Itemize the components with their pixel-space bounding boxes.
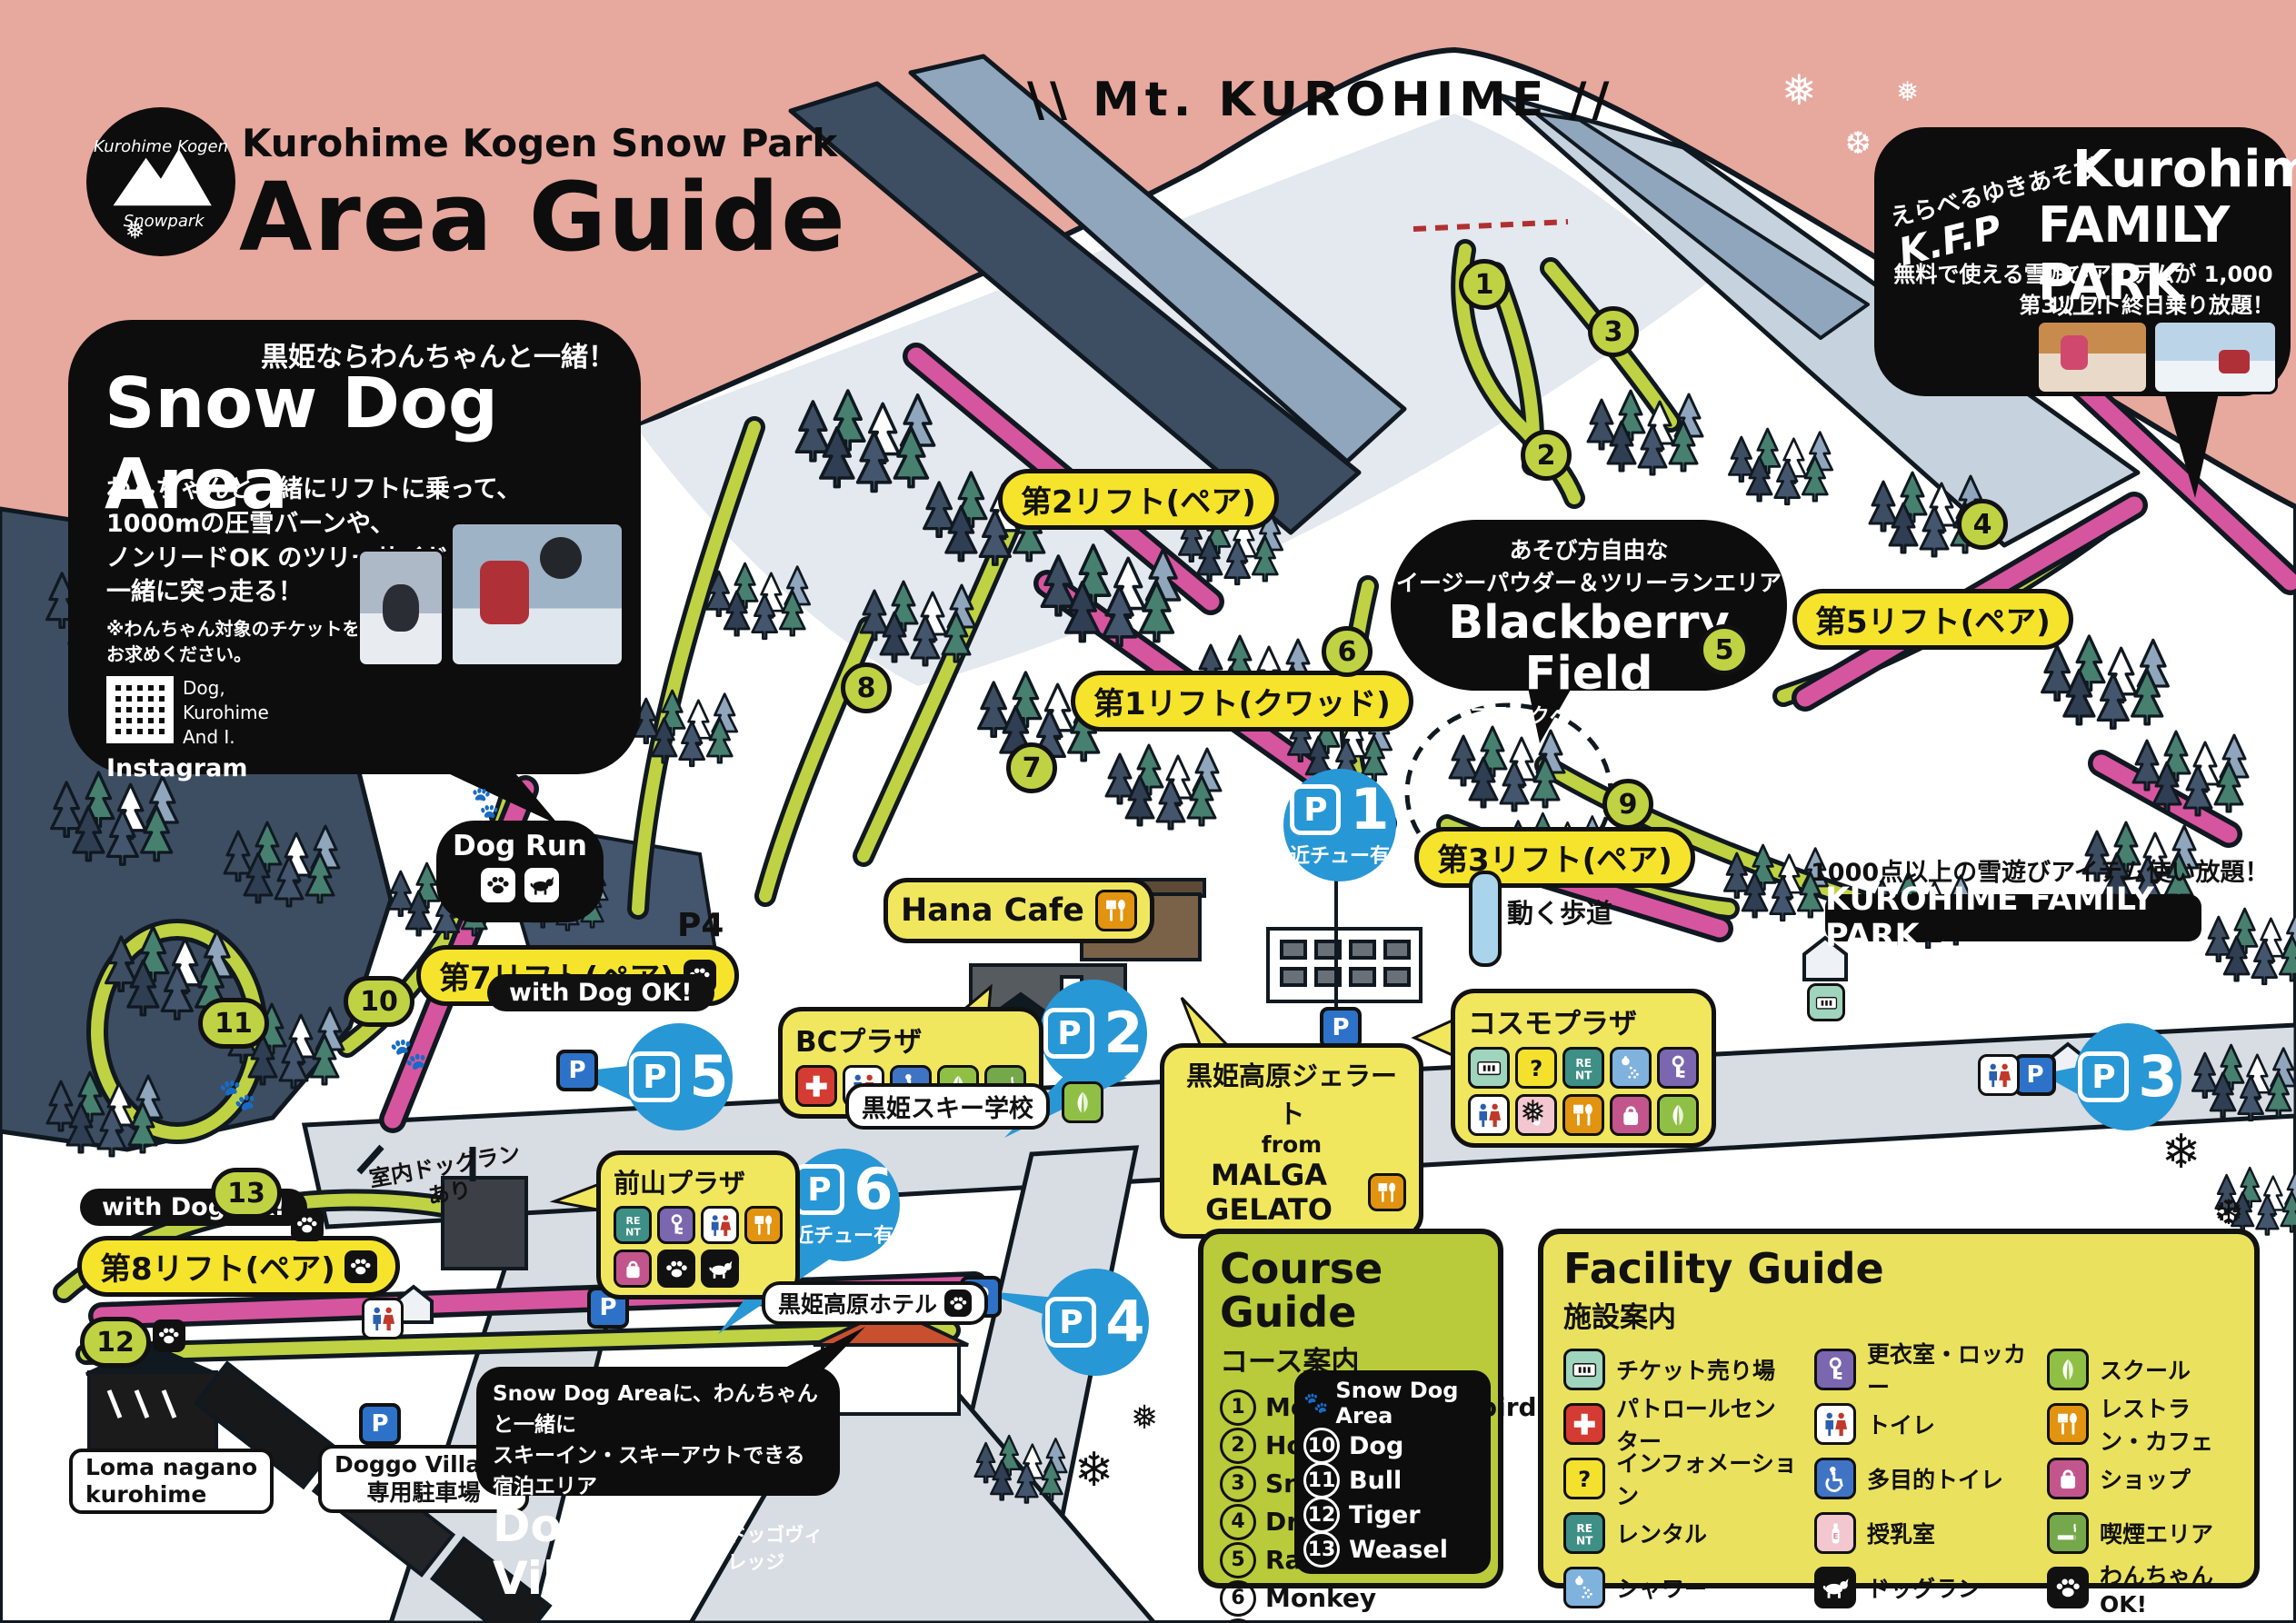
- p-icon: P: [2078, 1051, 2129, 1102]
- parking-p1-note: 近チュー有: [1290, 840, 1390, 869]
- family-park-map-label: KUROHIME FAMILY PARK: [1825, 894, 2201, 941]
- course-guide-snowdog-inset: 🐾 Snow Dog Area 10Dog 11Bull 12Tiger 13W…: [1294, 1370, 1491, 1574]
- mountain-title-mark-right: //: [1569, 73, 1614, 127]
- course-guide-title: Course Guide: [1220, 1247, 1482, 1335]
- cosmo-plaza-bubble: コスモプラザ: [1451, 989, 1716, 1148]
- doggo-village-title: Doggo Village: [493, 1499, 716, 1605]
- ticket-icon: [1563, 1349, 1605, 1390]
- restaurant-icon: [1368, 1173, 1406, 1211]
- maeyama-plaza-bubble: 前山プラザ: [596, 1150, 800, 1299]
- patrol-icon: [795, 1065, 837, 1107]
- qr-caption: Dog, Kurohime And I.: [183, 676, 269, 750]
- lift1-label: 第1リフト(クワッド): [1071, 671, 1413, 732]
- nursing-room-icon: [1814, 1512, 1856, 1554]
- p-icon: P: [1045, 1297, 1096, 1348]
- school-icon: [1062, 1081, 1103, 1123]
- parking-p6: P 6 近チュー有: [787, 1149, 900, 1261]
- parking-p1: P 1 近チュー有: [1283, 769, 1396, 881]
- blackberry-subtitle: ブラックベリーフィールド: [1391, 700, 1787, 729]
- parking-icon: P: [2014, 1054, 2056, 1096]
- parking-p5: P 5: [625, 1023, 733, 1130]
- dog-ok-icon: [944, 1289, 972, 1317]
- dog-run-icon: [701, 1250, 739, 1288]
- moving-walkway: [1469, 871, 1502, 967]
- blackberry-line1: あそび方自由な: [1391, 533, 1787, 565]
- snow-dog-photo-1: [357, 549, 444, 667]
- snow-dog-photo-2: [450, 522, 624, 667]
- toilet-icon: [1468, 1094, 1510, 1136]
- paw-marker-icon: 🐾: [218, 1077, 256, 1113]
- shop-icon: [614, 1250, 652, 1288]
- family-park-photo-2: [2152, 320, 2278, 394]
- area-guide-map: Kurohime Kogen Snowpark ❅ Kurohime Kogen…: [0, 0, 2296, 1623]
- restaurant-icon: [1562, 1094, 1604, 1136]
- smoking-icon: [2047, 1512, 2089, 1554]
- rental-icon: [1563, 1512, 1605, 1554]
- lift3-label: 第3リフト(ペア): [1414, 827, 1695, 888]
- paw-marker-icon: [153, 1319, 185, 1352]
- p-icon: P: [629, 1051, 680, 1102]
- accessible-toilet-icon: [1814, 1458, 1856, 1499]
- snowflake-icon: ❆: [1845, 125, 1872, 162]
- snowflake-icon: ❅: [1520, 1094, 1546, 1130]
- snowflake-icon: ❅: [1782, 65, 1817, 115]
- ski-school-label: 黒姫スキー学校: [845, 1083, 1050, 1130]
- family-park-photo-1: [2036, 320, 2149, 394]
- dog-run-icon: [1814, 1567, 1856, 1608]
- instagram-label: Instagram: [106, 754, 247, 782]
- resort-logo: Kurohime Kogen Snowpark ❅: [86, 107, 235, 256]
- ticket-map-icon: [1807, 983, 1845, 1021]
- information-icon: [1563, 1458, 1605, 1499]
- rental-icon: [614, 1206, 652, 1244]
- course-marker-5: 5: [1699, 624, 1750, 675]
- mountain-title-text: Mt. KUROHIME: [1093, 73, 1549, 127]
- family-park-title1: Kurohime: [2072, 140, 2296, 199]
- dog-icon: [524, 868, 559, 902]
- school-icon: [2047, 1349, 2089, 1390]
- doggo-village-subtitle: ドッゴヴィレッジ: [727, 1520, 824, 1575]
- parking-icon: P: [359, 1403, 401, 1445]
- p4-road-label: P4: [677, 907, 724, 944]
- snowdog-inset-title: Snow Dog Area: [1335, 1378, 1482, 1429]
- brand-title: Kurohime Kogen Snow Park: [242, 121, 837, 165]
- moving-walkway-label: 動く歩道: [1507, 892, 1612, 931]
- locker-icon: [657, 1206, 695, 1244]
- paw-icon: [481, 868, 515, 902]
- patrol-icon: [1563, 1403, 1605, 1445]
- with-dog-ok-label: with Dog OK!: [487, 974, 714, 1011]
- ticket-icon: [1468, 1047, 1510, 1089]
- hana-cafe-label: Hana Cafe: [883, 878, 1154, 943]
- dog-run-box: Dog Run: [436, 821, 604, 922]
- p-icon: P: [1290, 784, 1341, 835]
- paw-marker-icon: 🐾: [389, 1036, 427, 1072]
- snowflake-icon: ❅: [1131, 1399, 1158, 1437]
- hotel-label: 黒姫高原ホテル: [762, 1281, 988, 1325]
- family-park-bubble: えらべるゆきあそび K.F.P Kurohime FAMILY PARK 無料で…: [1874, 127, 2291, 396]
- blackberry-line2: イージーパウダー＆ツリーランエリア: [1391, 565, 1787, 598]
- facility-guide-panel: Facility Guide 施設案内 チケット売り場 パトロールセンター イン…: [1538, 1229, 2260, 1588]
- snowflake-icon: ❆: [2214, 1192, 2243, 1232]
- dog-ok-icon: [657, 1250, 695, 1288]
- family-park-line2: 第3リフト終日乗り放題！: [1892, 287, 2274, 319]
- snowflake-icon: ❄: [2161, 1125, 2201, 1180]
- school-icon: [1657, 1094, 1699, 1136]
- snow-dog-note: ※わんちゃん対象のチケットを お求めください。: [106, 616, 360, 667]
- course-marker-2: 2: [1521, 430, 1572, 481]
- toilet-map-icon: [362, 1298, 404, 1339]
- loma-label: Loma nagano kurohime: [69, 1449, 274, 1514]
- toilet-icon: [1814, 1403, 1856, 1445]
- gelato-bubble: 黒姫高原ジェラート from MALGA GELATO: [1160, 1043, 1423, 1239]
- course-marker-7: 7: [1006, 742, 1057, 793]
- logo-snowflake-icon: ❅: [125, 217, 145, 244]
- parking-p4: P 4: [1042, 1269, 1149, 1376]
- shower-icon: [1563, 1567, 1605, 1608]
- course-marker-11: 11: [198, 998, 269, 1049]
- information-icon: [1515, 1047, 1557, 1089]
- rental-icon: [1562, 1047, 1604, 1089]
- toilet-map-icon: [1978, 1054, 2020, 1096]
- course-guide-panel: Course Guide コース案内 1Mouse 2Horse 3Snake …: [1198, 1229, 1503, 1588]
- locker-icon: [1814, 1349, 1856, 1390]
- paw-icon: 🐾: [1303, 1392, 1328, 1415]
- parking-p3: P 3: [2074, 1023, 2181, 1130]
- page-title: Area Guide: [239, 162, 847, 273]
- dog-ok-paw-icon: [344, 1250, 377, 1283]
- restaurant-icon: [2047, 1403, 2089, 1445]
- shop-icon: [1610, 1094, 1652, 1136]
- course-marker-6: 6: [1322, 626, 1373, 677]
- doggo-village-bubble: Snow Dog Areaに、わんちゃんと一緒に スキーイン・スキーアウトできる…: [476, 1367, 840, 1496]
- p-icon: P: [794, 1164, 844, 1215]
- facility-guide-subtitle: 施設案内: [1563, 1294, 2234, 1335]
- logo-script-line1: Kurohime Kogen: [94, 137, 228, 156]
- restaurant-icon: [1095, 890, 1137, 931]
- toilet-icon: [701, 1206, 739, 1244]
- parking-icon: P: [556, 1050, 598, 1091]
- course-marker-1: 1: [1459, 259, 1510, 310]
- facility-guide-title: Facility Guide: [1563, 1247, 2234, 1290]
- snowflake-icon: ❄: [1074, 1443, 1114, 1498]
- p-icon: P: [1043, 1008, 1094, 1059]
- paw-marker-icon: [291, 1209, 324, 1241]
- course-marker-10: 10: [344, 976, 414, 1027]
- qr-code: [106, 676, 174, 743]
- dog-ok-icon: [2047, 1567, 2089, 1608]
- shop-icon: [2047, 1458, 2089, 1499]
- course-marker-8: 8: [841, 662, 892, 713]
- locker-icon: [1657, 1047, 1699, 1089]
- lift5-label: 第5リフト(ペア): [1792, 589, 2073, 650]
- course-marker-4: 4: [1957, 499, 2008, 550]
- course-marker-3: 3: [1588, 306, 1639, 357]
- snow-dog-area-bubble: 黒姫ならわんちゃんと一緒！ Snow Dog Area わんちゃんと一緒にリフト…: [68, 320, 641, 774]
- restaurant-icon: [744, 1206, 783, 1244]
- mountain-title: \\ Mt. KUROHIME //: [1027, 73, 1614, 127]
- dog-run-label: Dog Run: [436, 830, 604, 862]
- shower-icon: [1610, 1047, 1652, 1089]
- parking-p2: P 2: [1040, 980, 1147, 1087]
- course-marker-12: 12: [80, 1317, 151, 1368]
- course-marker-9: 9: [1602, 779, 1653, 830]
- parking-p6-note: 近チュー有: [794, 1220, 893, 1249]
- mountain-title-mark-left: \\: [1027, 73, 1073, 127]
- snowflake-icon: ❅: [1896, 76, 1919, 108]
- lift8-label: 第8リフト(ペア): [77, 1236, 400, 1297]
- lift2-label: 第2リフト(ペア): [998, 469, 1279, 530]
- course-marker-13: 13: [211, 1168, 282, 1219]
